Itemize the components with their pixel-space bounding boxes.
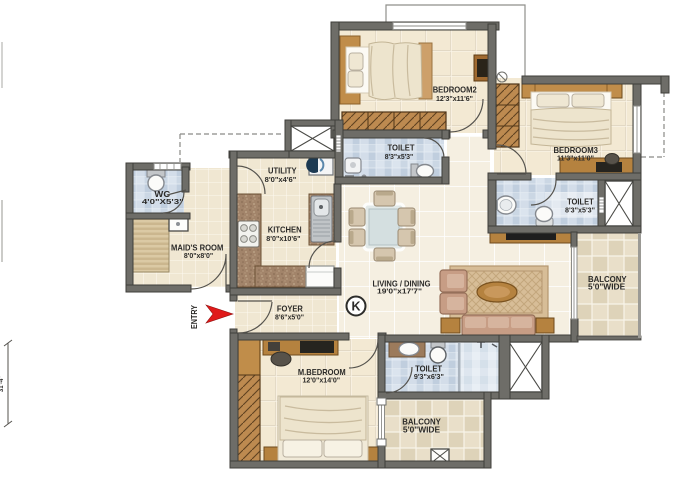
svg-text:8'0"x10'6": 8'0"x10'6" [266, 234, 301, 243]
svg-text:8'3"x5'3": 8'3"x5'3" [565, 205, 595, 214]
svg-text:ENTRY: ENTRY [190, 305, 199, 329]
svg-text:8'0"x8'0": 8'0"x8'0" [184, 251, 214, 260]
svg-text:12'0"x14'0": 12'0"x14'0" [303, 376, 341, 385]
svg-text:5'0"WIDE: 5'0"WIDE [588, 283, 626, 292]
svg-text:K: K [351, 300, 360, 314]
svg-text:19'0"x17'7": 19'0"x17'7" [377, 286, 423, 295]
svg-text:5'0"WIDE: 5'0"WIDE [403, 426, 441, 435]
svg-text:8'0"x4'6": 8'0"x4'6" [265, 175, 297, 184]
svg-text:8'6"x5'0": 8'6"x5'0" [275, 313, 304, 322]
svg-text:12'3"x11'6": 12'3"x11'6" [436, 94, 473, 103]
svg-text:9'3"x6'3": 9'3"x6'3" [414, 372, 444, 381]
svg-text:4'0"X5'3": 4'0"X5'3" [142, 197, 184, 206]
svg-text:11'3"x11'0": 11'3"x11'0" [557, 153, 594, 162]
svg-text:8'3"x5'3": 8'3"x5'3" [385, 152, 414, 161]
svg-text:31'-4": 31'-4" [0, 376, 5, 392]
